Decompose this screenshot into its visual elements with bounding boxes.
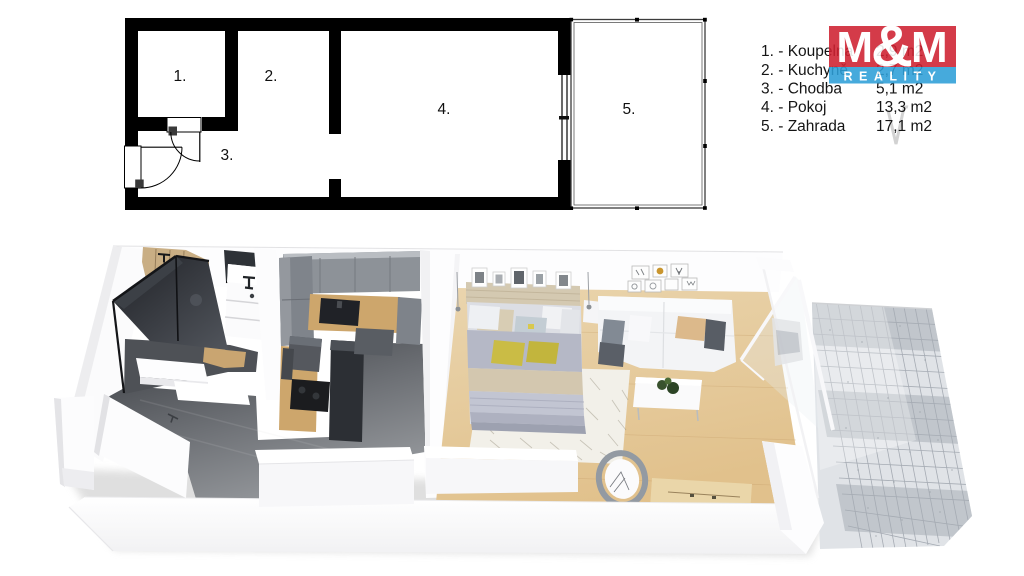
svg-text:4.: 4. [438,101,451,118]
svg-text:5. - Zahrada: 5. - Zahrada [761,118,846,135]
svg-text:13,3 m2: 13,3 m2 [876,99,932,116]
svg-text:5.: 5. [623,101,636,118]
svg-text:3.: 3. [221,147,234,164]
svg-text:2.: 2. [265,68,278,85]
svg-text:1.: 1. [174,68,187,85]
svg-text:REALITY: REALITY [844,70,943,84]
svg-text:17,1 m2: 17,1 m2 [876,118,932,135]
svg-text:4. - Pokoj: 4. - Pokoj [761,99,826,116]
